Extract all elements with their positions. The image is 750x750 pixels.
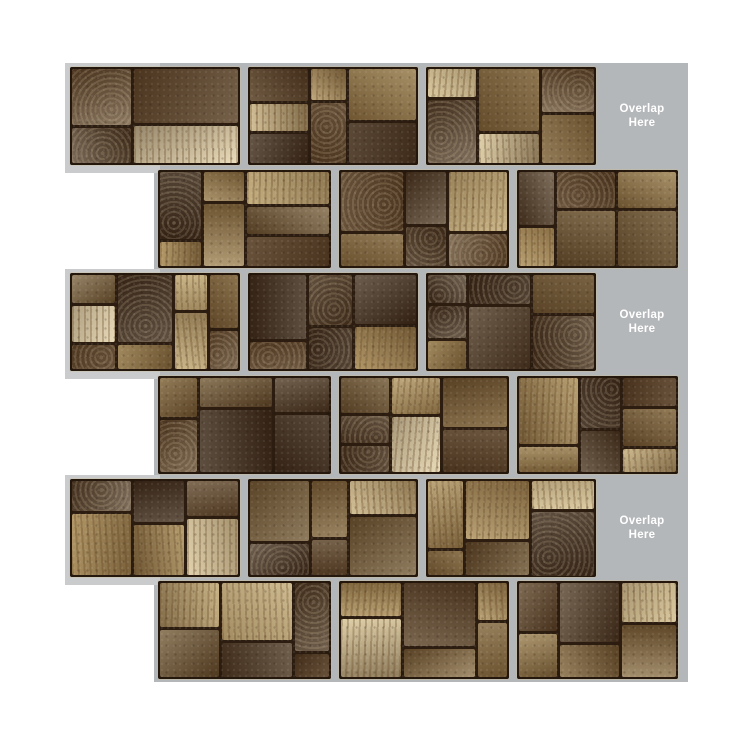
tile-brick bbox=[339, 581, 509, 679]
stone-patch bbox=[350, 517, 417, 576]
stone-patch bbox=[341, 172, 403, 232]
tile-brick bbox=[158, 581, 331, 679]
stone-patch bbox=[533, 316, 594, 369]
stone-patch bbox=[449, 234, 508, 266]
stone-patch bbox=[428, 69, 477, 97]
stone-patch bbox=[557, 172, 615, 209]
stone-patch bbox=[160, 630, 219, 678]
stone-patch bbox=[341, 446, 389, 473]
tile-sheet-row-5: Overlap Here bbox=[0, 479, 750, 577]
stone-patch bbox=[404, 649, 475, 677]
stone-patch bbox=[542, 69, 594, 112]
stone-patch bbox=[118, 275, 172, 342]
stone-patch bbox=[392, 378, 440, 415]
tile-brick bbox=[70, 479, 240, 577]
stone-patch bbox=[210, 275, 239, 328]
stone-patch bbox=[581, 378, 619, 428]
stone-patch bbox=[250, 481, 309, 541]
tile-brick bbox=[70, 67, 240, 165]
stone-patch bbox=[618, 211, 677, 266]
stone-patch bbox=[187, 481, 238, 516]
overlap-label-line2: Here bbox=[629, 323, 656, 336]
stone-patch bbox=[443, 378, 508, 427]
stone-patch bbox=[466, 542, 529, 576]
stone-patch bbox=[341, 234, 403, 266]
stone-patch bbox=[295, 654, 329, 678]
stone-patch bbox=[392, 417, 440, 472]
stone-patch bbox=[210, 331, 239, 370]
stone-patch bbox=[519, 634, 557, 678]
tile-brick bbox=[426, 479, 596, 577]
stone-patch bbox=[160, 242, 202, 266]
tile-brick bbox=[426, 67, 596, 165]
stone-patch bbox=[623, 449, 677, 473]
stone-patch bbox=[341, 416, 389, 443]
stone-patch bbox=[247, 237, 329, 266]
stone-patch bbox=[222, 643, 292, 677]
tile-brick bbox=[339, 170, 509, 268]
tile-brick bbox=[517, 170, 678, 268]
stone-patch bbox=[200, 378, 272, 408]
stone-patch bbox=[350, 481, 417, 514]
stone-patch bbox=[72, 69, 132, 125]
tile-brick bbox=[158, 170, 331, 268]
stone-patch bbox=[250, 104, 308, 131]
tile-brick bbox=[248, 479, 418, 577]
stone-patch bbox=[311, 103, 346, 163]
overlap-label-line1: Overlap bbox=[620, 103, 665, 116]
tile-brick bbox=[517, 581, 678, 679]
stone-patch bbox=[72, 128, 132, 164]
stone-patch bbox=[341, 583, 402, 617]
stone-patch bbox=[533, 275, 594, 314]
stone-patch bbox=[466, 481, 529, 539]
stone-patch bbox=[200, 410, 272, 472]
stone-patch bbox=[222, 583, 292, 641]
stone-patch bbox=[175, 313, 207, 370]
tile-sheet-row-2 bbox=[0, 170, 750, 268]
stone-patch bbox=[428, 306, 467, 338]
stone-patch bbox=[560, 645, 619, 678]
stone-patch bbox=[134, 481, 184, 522]
stone-patch bbox=[134, 525, 184, 576]
tile-brick bbox=[248, 273, 418, 371]
stone-patch bbox=[428, 551, 463, 575]
tile-brick bbox=[426, 273, 596, 371]
stone-patch bbox=[341, 378, 389, 413]
stone-patch bbox=[295, 583, 329, 651]
stone-patch bbox=[618, 172, 677, 209]
stone-patch bbox=[134, 69, 238, 124]
stone-patch bbox=[479, 134, 539, 164]
stone-patch bbox=[118, 345, 172, 370]
overlap-label-line1: Overlap bbox=[620, 515, 665, 528]
stone-patch bbox=[134, 126, 238, 163]
overlap-tab: Overlap Here bbox=[596, 273, 688, 371]
stone-patch bbox=[469, 307, 530, 369]
tile-sheet-row-6 bbox=[0, 581, 750, 679]
overlap-label-line2: Here bbox=[629, 117, 656, 130]
stone-patch bbox=[250, 134, 308, 163]
tile-brick bbox=[517, 376, 678, 474]
stone-patch bbox=[311, 69, 346, 101]
stone-patch bbox=[341, 619, 402, 677]
stone-patch bbox=[428, 341, 467, 370]
stone-patch bbox=[312, 540, 347, 575]
stone-patch bbox=[542, 115, 594, 164]
overlap-label-line2: Here bbox=[629, 529, 656, 542]
stone-patch bbox=[250, 69, 308, 101]
tile-sheet-row-4 bbox=[0, 376, 750, 474]
stone-patch bbox=[349, 123, 417, 164]
stone-patch bbox=[519, 228, 554, 267]
stone-patch bbox=[247, 172, 329, 205]
stone-patch bbox=[250, 544, 309, 576]
stone-patch bbox=[204, 172, 244, 202]
stone-patch bbox=[160, 172, 202, 240]
stone-patch bbox=[160, 583, 219, 627]
tile-sheet-row-1: Overlap Here bbox=[0, 67, 750, 165]
tile-sheet-row-3: Overlap Here bbox=[0, 273, 750, 371]
stone-patch bbox=[532, 512, 595, 576]
stone-patch bbox=[532, 481, 595, 509]
stone-patch bbox=[204, 204, 244, 266]
stone-patch bbox=[250, 275, 306, 340]
stone-patch bbox=[187, 519, 238, 576]
stone-patch bbox=[275, 378, 330, 412]
stone-patch bbox=[72, 514, 131, 575]
tile-brick bbox=[158, 376, 331, 474]
stone-patch bbox=[309, 328, 352, 370]
stone-patch bbox=[479, 69, 539, 131]
overlap-tab: Overlap Here bbox=[596, 67, 688, 165]
stone-patch bbox=[72, 481, 131, 512]
stone-patch bbox=[428, 275, 467, 303]
stone-patch bbox=[622, 625, 676, 677]
stone-patch bbox=[406, 227, 446, 266]
stone-patch bbox=[623, 378, 677, 407]
stone-patch bbox=[519, 378, 579, 444]
overlap-label-line1: Overlap bbox=[620, 309, 665, 322]
stone-patch bbox=[478, 623, 508, 678]
stone-patch bbox=[275, 415, 330, 473]
stone-patch bbox=[519, 447, 579, 473]
stone-patch bbox=[478, 583, 508, 620]
tile-brick bbox=[339, 376, 509, 474]
stone-patch bbox=[312, 481, 347, 538]
stone-patch bbox=[557, 211, 615, 266]
stone-patch bbox=[355, 275, 417, 324]
stone-patch bbox=[349, 69, 417, 120]
stone-patch bbox=[72, 345, 116, 369]
stone-patch bbox=[404, 583, 475, 647]
stone-patch bbox=[519, 583, 557, 631]
stone-patch bbox=[309, 275, 352, 325]
overlap-tab: Overlap Here bbox=[596, 479, 688, 577]
stone-patch bbox=[250, 342, 306, 369]
stone-patch bbox=[581, 431, 619, 473]
tile-brick bbox=[248, 67, 418, 165]
stone-patch bbox=[72, 306, 116, 342]
stone-patch bbox=[355, 327, 417, 370]
stone-patch bbox=[622, 583, 676, 623]
tile-brick bbox=[70, 273, 240, 371]
stone-patch bbox=[160, 378, 198, 418]
stone-patch bbox=[428, 100, 477, 164]
stone-patch bbox=[428, 481, 463, 549]
stone-patch bbox=[519, 172, 554, 225]
stone-patch bbox=[247, 207, 329, 234]
stone-patch bbox=[449, 172, 508, 232]
stone-patch bbox=[469, 275, 530, 305]
stone-patch bbox=[443, 430, 508, 473]
stone-patch bbox=[175, 275, 207, 310]
stone-patch bbox=[406, 172, 446, 225]
stone-patch bbox=[160, 420, 198, 472]
stone-patch bbox=[560, 583, 619, 642]
stone-patch bbox=[623, 409, 677, 446]
product-image: Overlap Here Overlap Here Overlap Here bbox=[0, 0, 750, 750]
stone-patch bbox=[72, 275, 116, 304]
